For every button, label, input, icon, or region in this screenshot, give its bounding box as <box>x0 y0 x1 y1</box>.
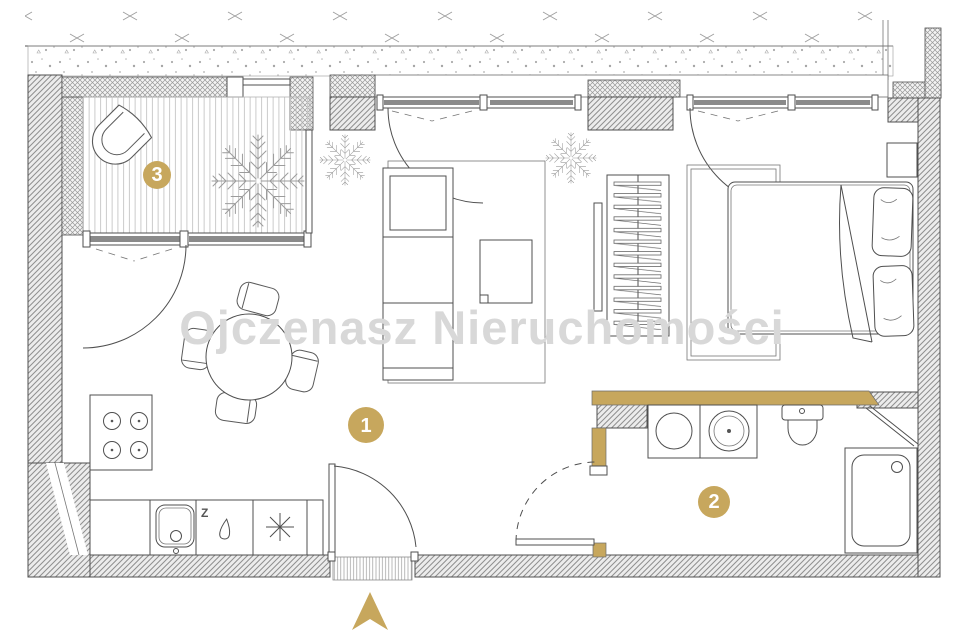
entrance-door-swing <box>334 466 416 547</box>
door-opening-dashes <box>698 111 778 121</box>
floor-plan-page: Z <box>0 0 970 635</box>
door-opening-dashes <box>392 111 472 121</box>
stove-icon <box>90 395 152 470</box>
mullion-cap <box>872 95 878 110</box>
threshold-cap <box>328 552 335 561</box>
bathroom-door-leaf <box>516 539 594 545</box>
nightstand-icon <box>887 143 917 177</box>
bathroom-sink-icon <box>700 405 757 458</box>
window-glass <box>490 100 573 105</box>
kitchen: Z <box>90 395 323 555</box>
window-glass <box>694 100 786 105</box>
wardrobe-sliding-door <box>594 203 602 311</box>
room-marker-balcony: 3 <box>143 161 171 189</box>
pillow-icon <box>872 187 913 256</box>
shower-glass-door <box>866 406 918 446</box>
wall-pier-1 <box>330 97 375 130</box>
gravel-band <box>28 46 893 76</box>
entrance-doormat <box>333 557 412 580</box>
mullion-cap <box>480 95 487 110</box>
entrance-door-leaf <box>329 464 335 556</box>
mullion-cap <box>377 95 383 110</box>
pier-insulation-1 <box>330 75 375 97</box>
wall-end-cap <box>227 77 243 97</box>
dishwasher-z-label: Z <box>201 506 208 520</box>
bathroom-door-post <box>593 543 606 557</box>
pillow-icon <box>873 265 914 336</box>
freezer-asterisk-icon <box>266 513 294 541</box>
balcony-top-glazing <box>243 79 290 85</box>
plant-icon <box>320 135 371 186</box>
toilet-icon <box>782 405 823 445</box>
coffee-table-icon <box>480 240 532 303</box>
bathroom-tiled-wall-band <box>592 391 879 405</box>
mullion-cap <box>83 231 90 247</box>
exterior-wall-right <box>918 98 940 577</box>
plant-icon <box>546 133 597 184</box>
balcony <box>83 97 310 233</box>
mullion-cap <box>575 95 581 110</box>
exterior-wall-bottom-right <box>415 555 918 577</box>
marker-1-label: 1 <box>360 415 371 437</box>
door-opening-dashes <box>96 249 172 261</box>
window-glass <box>189 236 304 242</box>
mullion-cap <box>687 95 693 110</box>
mullion-cap <box>788 95 795 110</box>
room-marker-living-area: 1 <box>348 407 384 443</box>
window-glass <box>384 100 479 105</box>
marker-3-label: 3 <box>151 164 162 186</box>
window-glass <box>89 236 180 242</box>
outdoor-area <box>25 0 893 80</box>
grass-texture <box>25 0 893 46</box>
mullion-cap <box>180 231 188 247</box>
threshold-cap <box>411 552 418 561</box>
bathroom-wall-block <box>597 404 647 428</box>
wall-pier-3 <box>888 98 918 122</box>
watermark-text: Ojczenasz Nieruchomości <box>179 301 784 354</box>
marker-2-label: 2 <box>708 491 719 513</box>
wall-pier-2 <box>588 97 673 130</box>
door-post-cap <box>590 466 607 475</box>
exterior-wall-bottom-left <box>90 555 330 577</box>
window-glass <box>796 100 870 105</box>
balcony-top-wall <box>62 77 227 97</box>
room-marker-bathroom: 2 <box>698 486 730 518</box>
insulation-left <box>62 97 83 235</box>
north-arrow-icon <box>352 592 388 630</box>
pier-insulation-2 <box>588 80 680 97</box>
washing-machine-icon <box>648 405 700 458</box>
floor-plan-drawing: Z <box>0 0 970 635</box>
bathroom-door-swing <box>516 462 596 542</box>
corner-insulation-v <box>925 28 941 98</box>
shower-icon <box>845 406 918 553</box>
balcony-side-glazing <box>306 130 312 233</box>
